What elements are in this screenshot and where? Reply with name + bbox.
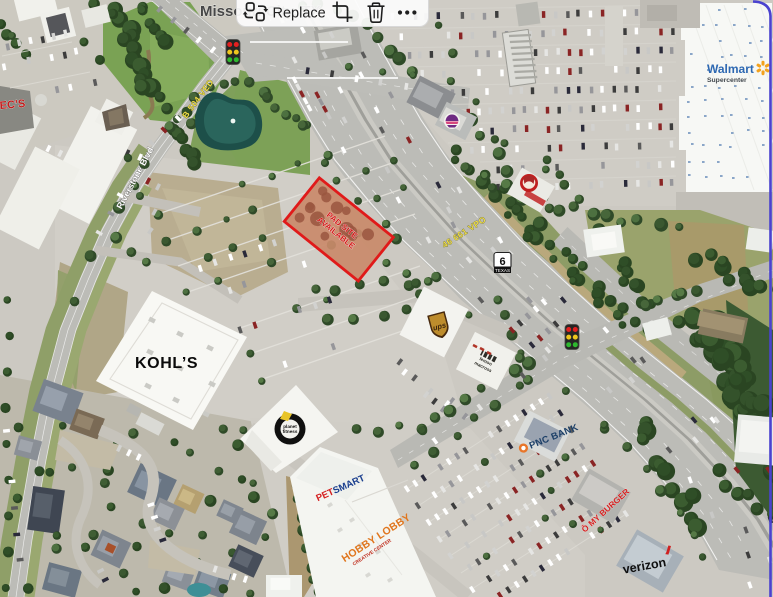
svg-text:EC’S: EC’S <box>0 98 26 112</box>
svg-text:fitness: fitness <box>283 429 298 434</box>
svg-text:TEXAS: TEXAS <box>495 268 510 273</box>
svg-text:Walmart: Walmart <box>707 62 754 76</box>
svg-text:KOHL’S: KOHL’S <box>135 355 198 372</box>
svg-text:Replace: Replace <box>273 6 326 22</box>
svg-text:Supercenter: Supercenter <box>707 77 747 84</box>
svg-text:6: 6 <box>499 256 505 268</box>
